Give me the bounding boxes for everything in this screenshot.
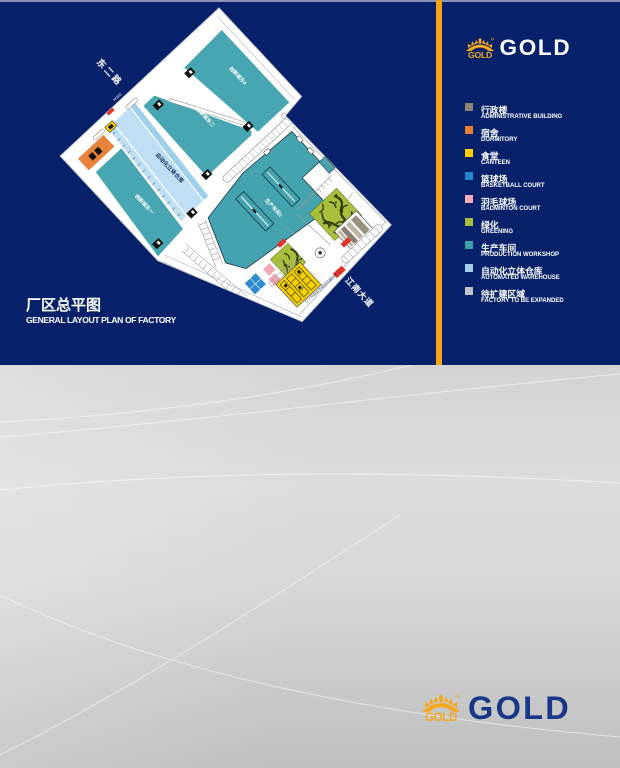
svg-text:江南大道: 江南大道: [343, 275, 376, 309]
svg-text:GOLD: GOLD: [425, 712, 457, 721]
svg-text:东二路: 东二路: [95, 56, 126, 88]
svg-text:GOLD: GOLD: [468, 50, 492, 58]
